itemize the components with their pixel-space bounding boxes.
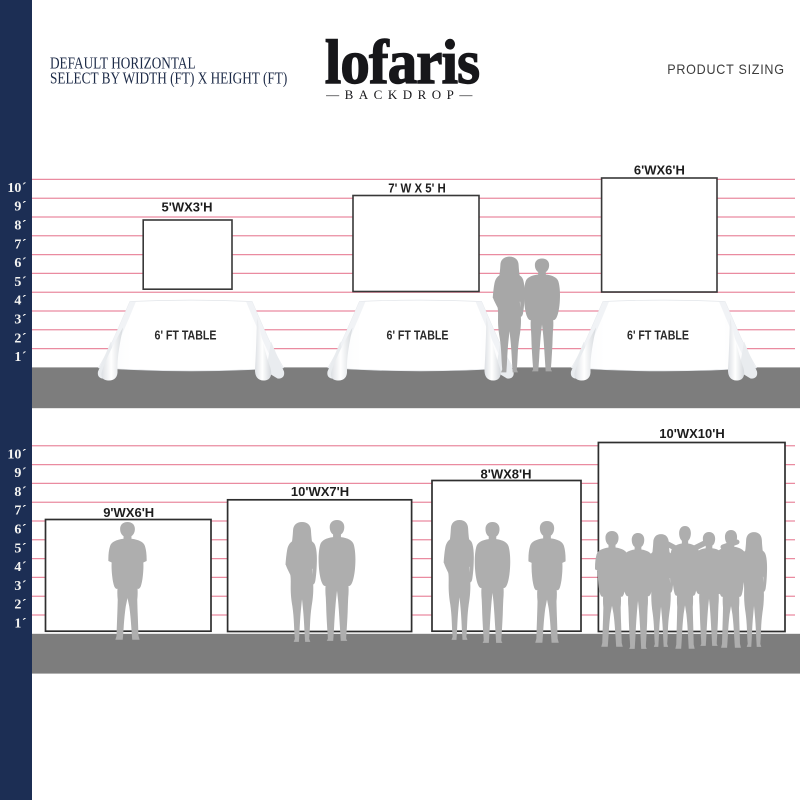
- svg-text:8'WX8'H: 8'WX8'H: [481, 467, 532, 482]
- svg-text:5´: 5´: [14, 275, 27, 290]
- svg-text:1´: 1´: [14, 617, 27, 632]
- svg-text:5´: 5´: [14, 541, 27, 556]
- svg-text:3´: 3´: [14, 313, 27, 328]
- svg-text:10´: 10´: [7, 181, 27, 196]
- svg-text:6' FT TABLE: 6' FT TABLE: [155, 329, 217, 343]
- svg-text:PRODUCT SIZING: PRODUCT SIZING: [667, 62, 784, 78]
- svg-text:7´: 7´: [14, 504, 27, 519]
- svg-text:10'WX7'H: 10'WX7'H: [291, 484, 349, 499]
- svg-text:6' FT TABLE: 6' FT TABLE: [387, 329, 449, 343]
- svg-text:8´: 8´: [14, 485, 27, 500]
- svg-text:7´: 7´: [14, 237, 27, 252]
- svg-text:—BACKDROP—: —BACKDROP—: [325, 87, 478, 102]
- svg-text:9´: 9´: [14, 200, 27, 215]
- svg-text:6´: 6´: [14, 256, 27, 271]
- svg-text:2´: 2´: [14, 331, 27, 346]
- svg-text:2´: 2´: [14, 598, 27, 613]
- svg-text:1´: 1´: [14, 350, 27, 365]
- svg-text:6´: 6´: [14, 523, 27, 538]
- svg-text:SELECT BY WIDTH (FT) X HEIGHT: SELECT BY WIDTH (FT) X HEIGHT (FT): [50, 69, 287, 88]
- svg-text:9´: 9´: [14, 466, 27, 481]
- svg-text:7' W X 5' H: 7' W X 5' H: [388, 181, 446, 196]
- svg-text:8´: 8´: [14, 219, 27, 234]
- svg-text:10´: 10´: [7, 447, 27, 462]
- svg-text:9'WX6'H: 9'WX6'H: [103, 505, 154, 520]
- svg-text:5'WX3'H: 5'WX3'H: [162, 200, 213, 215]
- svg-text:6'WX6'H: 6'WX6'H: [634, 162, 685, 177]
- svg-text:6' FT TABLE: 6' FT TABLE: [627, 329, 689, 343]
- svg-text:4´: 4´: [14, 294, 27, 309]
- svg-text:3´: 3´: [14, 579, 27, 594]
- svg-text:4´: 4´: [14, 560, 27, 575]
- svg-text:10'WX10'H: 10'WX10'H: [659, 426, 724, 441]
